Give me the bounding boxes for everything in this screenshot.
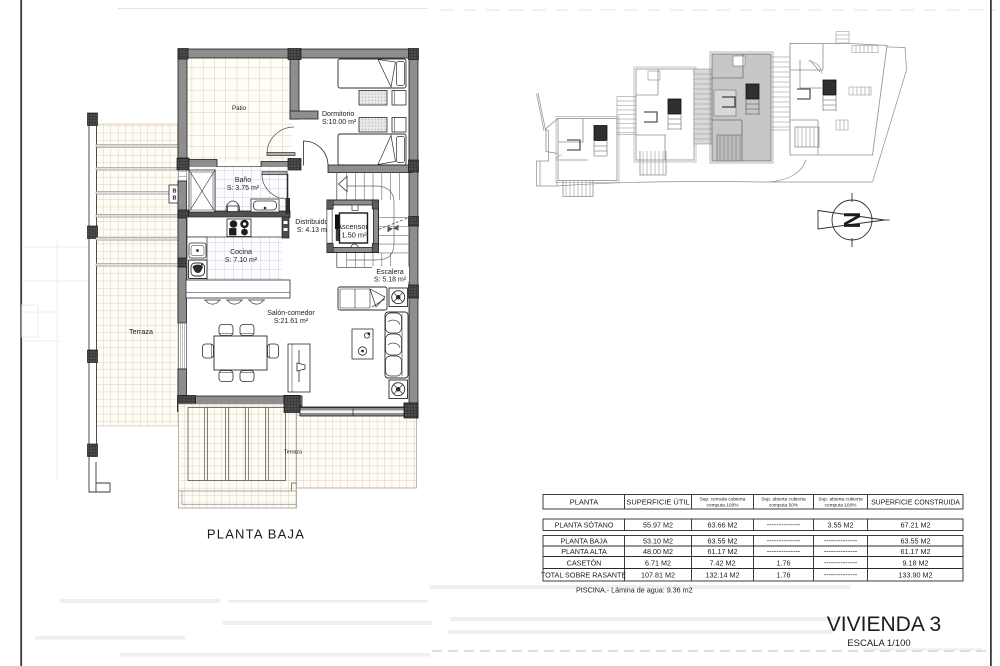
svg-text:Salón-comedor: Salón-comedor — [267, 310, 315, 317]
svg-text:63.66 M2: 63.66 M2 — [708, 521, 738, 530]
svg-text:Terraza: Terraza — [129, 327, 153, 336]
svg-text:61.17 M2: 61.17 M2 — [708, 547, 738, 556]
svg-text:Terraza: Terraza — [284, 450, 302, 456]
svg-text:--------------: -------------- — [767, 547, 801, 556]
svg-text:computa 100%: computa 100% — [825, 503, 858, 509]
svg-text:--------------: -------------- — [767, 520, 801, 529]
svg-text:PLANTA BAJA: PLANTA BAJA — [560, 537, 607, 546]
svg-text:B: B — [173, 196, 177, 202]
svg-text:6.71 M2: 6.71 M2 — [645, 559, 671, 568]
svg-text:PISCINA.- Lámina de agua: 9.36: PISCINA.- Lámina de agua: 9.36 m2 — [576, 586, 693, 595]
svg-text:N: N — [839, 212, 865, 229]
svg-text:67.21 M2: 67.21 M2 — [901, 521, 931, 530]
svg-text:Sup. cerrada cubierta: Sup. cerrada cubierta — [700, 497, 746, 503]
svg-text:--------------: -------------- — [824, 547, 858, 556]
svg-text:CASETÓN: CASETÓN — [567, 559, 602, 568]
svg-text:VIVIENDA 3: VIVIENDA 3 — [827, 613, 941, 636]
svg-text:PLANTA BAJA: PLANTA BAJA — [207, 527, 305, 542]
svg-text:Dormitorio: Dormitorio — [322, 111, 354, 118]
svg-text:B: B — [173, 189, 177, 195]
svg-text:ESCALA 1/100: ESCALA 1/100 — [847, 638, 910, 649]
svg-text:TOTAL SOBRE RASANTE: TOTAL SOBRE RASANTE — [541, 571, 627, 580]
svg-text:SUPERFICIE ÚTIL: SUPERFICIE ÚTIL — [626, 498, 689, 507]
svg-text:Distribuidor: Distribuidor — [295, 219, 331, 226]
svg-text:S: 4.13 m²: S: 4.13 m² — [297, 227, 330, 234]
svg-text:computa 100%: computa 100% — [707, 503, 740, 509]
svg-text:63.55 M2: 63.55 M2 — [708, 537, 738, 546]
svg-text:63.55 M2: 63.55 M2 — [901, 537, 931, 546]
svg-text:--------------: -------------- — [824, 570, 858, 579]
svg-text:3.55 M2: 3.55 M2 — [828, 521, 854, 530]
svg-text:--------------: -------------- — [824, 536, 858, 545]
svg-text:PLANTA: PLANTA — [570, 498, 599, 507]
svg-text:S:10.00 m²: S:10.00 m² — [322, 119, 357, 126]
svg-text:107.81 M2: 107.81 M2 — [641, 571, 675, 580]
svg-text:PLANTA SÓTANO: PLANTA SÓTANO — [555, 521, 614, 530]
svg-text:S: 5.18 m²: S: 5.18 m² — [374, 277, 407, 284]
svg-text:1.76: 1.76 — [777, 571, 791, 580]
svg-text:1.76: 1.76 — [777, 559, 791, 568]
svg-text:133.90 M2: 133.90 M2 — [899, 571, 933, 580]
svg-text:Cocina: Cocina — [230, 249, 252, 256]
svg-text:55.97 M2: 55.97 M2 — [643, 521, 673, 530]
svg-text:61.17 M2: 61.17 M2 — [901, 547, 931, 556]
svg-text:132.14 M2: 132.14 M2 — [706, 571, 740, 580]
svg-text:48.00 M2: 48.00 M2 — [643, 547, 673, 556]
svg-text:9.18 M2: 9.18 M2 — [903, 559, 929, 568]
svg-text:S: 3.75 m²: S: 3.75 m² — [227, 185, 260, 192]
svg-text:computa 50%: computa 50% — [769, 503, 799, 509]
svg-text:Patio: Patio — [232, 105, 247, 112]
svg-text:SUPERFICIE CONSTRUIDA: SUPERFICIE CONSTRUIDA — [871, 500, 960, 507]
svg-text:S:21.61 m²: S:21.61 m² — [274, 318, 309, 325]
svg-text:Baño: Baño — [235, 177, 251, 184]
svg-text:Sup. abierta cubierta: Sup. abierta cubierta — [761, 497, 806, 503]
svg-text:53.10 M2: 53.10 M2 — [643, 537, 673, 546]
svg-text:--------------: -------------- — [767, 536, 801, 545]
svg-text:PLANTA ALTA: PLANTA ALTA — [561, 547, 607, 556]
svg-text:Escalera: Escalera — [376, 269, 403, 276]
svg-text:1.50 m²: 1.50 m² — [341, 231, 367, 240]
svg-text:7.42 M2: 7.42 M2 — [710, 559, 736, 568]
svg-text:Sup. abierta cubierta: Sup. abierta cubierta — [818, 497, 863, 503]
svg-text:S: 7.10 m²: S: 7.10 m² — [225, 257, 258, 264]
svg-text:--------------: -------------- — [824, 558, 858, 567]
